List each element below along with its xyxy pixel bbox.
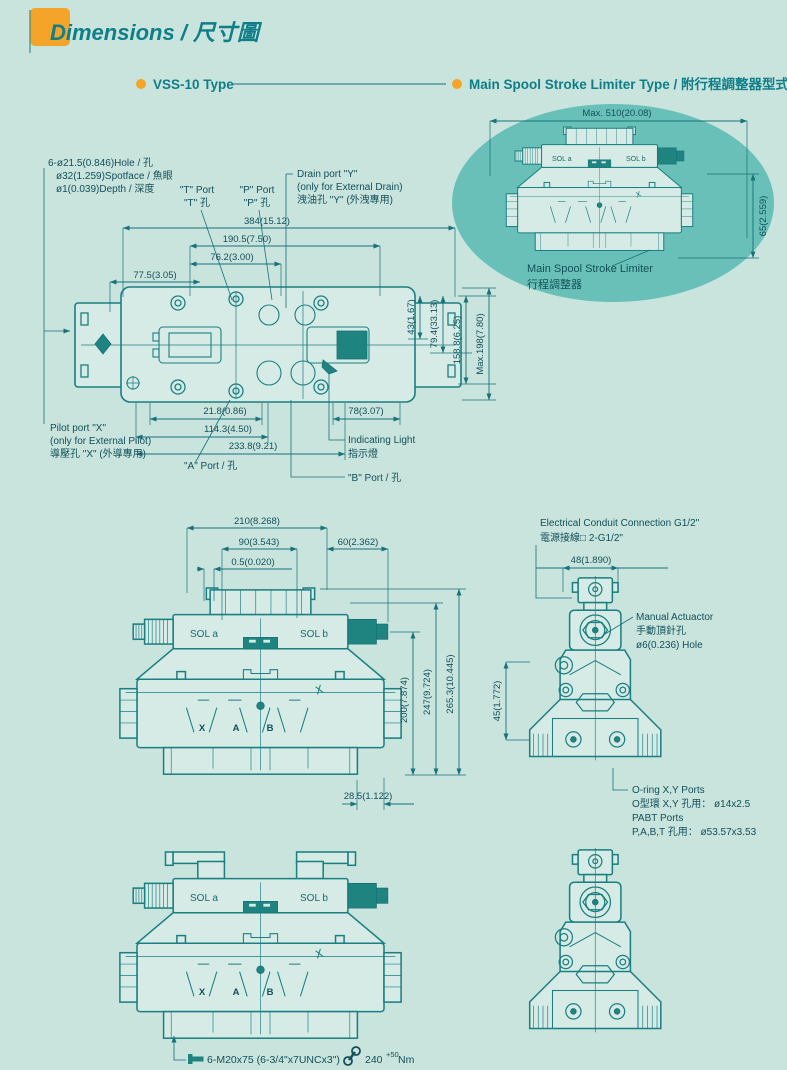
dim-210: 210(8.268) [187, 516, 327, 593]
side-view-drawing [530, 576, 661, 760]
dim-60: 60(2.362) [327, 537, 388, 622]
svg-text:265.3(10.445): 265.3(10.445) [445, 654, 456, 713]
conduit-label-line1: Electrical Conduit Connection G1/2" [540, 518, 700, 529]
conduit-leader [536, 545, 572, 598]
sol-a-label: SOL a [552, 156, 572, 163]
pilot-port-label-line3: 導壓孔 "X" (外導專用) [50, 447, 146, 460]
svg-text:28.5(1.122): 28.5(1.122) [344, 791, 393, 802]
svg-text:Max. 510(20.08): Max. 510(20.08) [582, 108, 651, 119]
svg-text:43(1.67): 43(1.67) [406, 299, 417, 334]
torque-unit: Nm [398, 1054, 415, 1066]
svg-text:190.5(7.50): 190.5(7.50) [223, 234, 272, 245]
sol-a-label: SOL a [190, 629, 218, 640]
p-port-label-en: "P" Port [240, 185, 275, 196]
sol-b-label: SOL b [300, 893, 328, 904]
stroke-limiter-label-zh: 行程調整器 [527, 277, 582, 291]
svg-text:45(1.772): 45(1.772) [492, 681, 503, 722]
svg-text:210(8.268): 210(8.268) [234, 516, 280, 527]
svg-text:Max.198(7.80): Max.198(7.80) [475, 313, 486, 374]
svg-text:158.8(6.25): 158.8(6.25) [452, 316, 463, 365]
conduit-label-line2: 電源接線□ 2-G1/2" [540, 531, 623, 544]
port-mark-x: X [199, 723, 206, 734]
dim-21: 21.8(0.86) [150, 403, 262, 425]
sol-b-label: SOL b [300, 629, 328, 640]
svg-text:48(1.890): 48(1.890) [571, 555, 612, 566]
dim-78: 78(3.07) [333, 403, 400, 425]
sol-b-label: SOL b [626, 156, 646, 163]
svg-text:60(2.362): 60(2.362) [338, 537, 379, 548]
port-mark-b: B [267, 987, 274, 998]
oring-leader [613, 768, 628, 790]
a-port-label: "A" Port / 孔 [184, 460, 237, 472]
front-view-conduit-drawing [120, 852, 401, 1038]
catalog-page: Dimensions / 尺寸圖 VSS-10 Type Main Spool … [0, 0, 787, 1070]
oring-note-line1: O-ring X,Y Ports [632, 785, 705, 796]
p-port-label-zh: "P" 孔 [244, 197, 271, 209]
oring-note-line3: PABT Ports [632, 813, 683, 824]
stroke-limiter-label-en: Main Spool Stroke Limiter [527, 263, 653, 275]
svg-text:21.8(0.86): 21.8(0.86) [203, 406, 246, 417]
svg-text:78(3.07): 78(3.07) [348, 406, 383, 417]
hole-note-line3: ø1(0.039)Depth / 深度 [56, 182, 154, 195]
manual-actuator-label-line1: Manual Actuactor [636, 612, 714, 623]
plan-view-drawing [75, 287, 461, 402]
torque-tolerance: +50 [386, 1050, 399, 1059]
dim-28: 28.5(1.122) [342, 778, 414, 810]
svg-text:384(15.12): 384(15.12) [244, 216, 290, 227]
hole-note-line2: ø32(1.259)Spotface / 魚眼 [56, 169, 173, 182]
svg-text:76.2(3.00): 76.2(3.00) [210, 252, 253, 263]
svg-text:77.5(3.05): 77.5(3.05) [133, 270, 176, 281]
oring-note-line4: P,A,B,T 孔用： ø53.57x3.53 [632, 826, 757, 838]
pilot-port-label-line2: (only for External Pilot) [50, 436, 151, 447]
sol-a-label: SOL a [190, 893, 218, 904]
t-port-label-en: "T" Port [180, 185, 215, 196]
torque-value: 240 [365, 1054, 383, 1066]
b-port-label: "B" Port / 孔 [348, 472, 401, 484]
side-view-drawing-2 [530, 848, 661, 1032]
port-mark-x: X [199, 987, 206, 998]
drain-label-line2: (only for External Drain) [297, 182, 403, 193]
dim-45: 45(1.772) [492, 662, 530, 740]
port-mark-b: B [267, 723, 274, 734]
svg-text:0.5(0.020): 0.5(0.020) [231, 557, 274, 568]
t-port-label-zh: "T" 孔 [184, 197, 210, 209]
bullet-icon [452, 79, 462, 89]
indicating-light-label-zh: 指示燈 [348, 447, 378, 460]
bolt-icon [188, 1054, 204, 1064]
svg-text:90(3.543): 90(3.543) [239, 537, 280, 548]
section-vss10: VSS-10 Type [153, 77, 234, 92]
bolt-leader [174, 1036, 186, 1060]
b-port-leader [291, 400, 345, 477]
front-view-drawing [120, 588, 401, 774]
section-stroke-limiter: Main Spool Stroke Limiter Type / 附行程調整器型… [469, 76, 787, 92]
manual-actuator-label-line3: ø6(0.236) Hole [636, 640, 703, 651]
wrench-icon [344, 1047, 360, 1065]
manual-actuator-label-line2: 手動頂針孔 [636, 624, 686, 637]
svg-text:79.4(33.13): 79.4(33.13) [429, 300, 440, 349]
page-title: Dimensions / 尺寸圖 [50, 20, 263, 45]
dim-114: 114.3(4.50) [136, 403, 268, 443]
dimensions-diagram: Dimensions / 尺寸圖 VSS-10 Type Main Spool … [0, 0, 787, 1070]
bullet-icon [136, 79, 146, 89]
indicating-light-label-en: Indicating Light [348, 435, 415, 446]
bolt-spec-text: 6-M20x75 (6-3/4"x7UNCx3") [207, 1054, 340, 1066]
pilot-port-label-line1: Pilot port "X" [50, 423, 106, 434]
drain-label-line3: 洩油孔 "Y" (外洩專用) [297, 193, 393, 206]
svg-text:65(2.559): 65(2.559) [758, 196, 769, 237]
oring-note-line2: O型環 X,Y 孔用： ø14x2.5 [632, 797, 751, 810]
dim-198: Max.198(7.80) [462, 288, 496, 400]
drain-label-line1: Drain port "Y" [297, 169, 358, 180]
port-mark-a: A [233, 723, 240, 734]
dim-384: 384(15.12) [123, 216, 455, 297]
svg-text:233.8(9.21): 233.8(9.21) [229, 441, 278, 452]
port-mark-a: A [233, 987, 240, 998]
svg-text:247(9.724): 247(9.724) [422, 669, 433, 715]
hole-note-line1: 6-ø21.5(0.846)Hole / 孔 [48, 157, 153, 169]
svg-text:200(7.874): 200(7.874) [399, 677, 410, 723]
